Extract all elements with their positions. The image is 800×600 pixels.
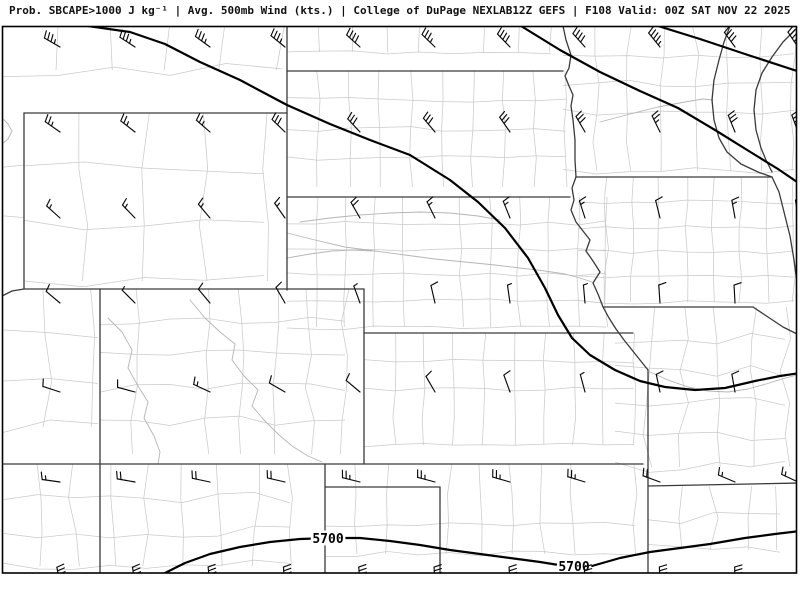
wind-barb — [276, 282, 285, 303]
wind-barb — [198, 198, 210, 218]
wind-barb — [493, 470, 510, 482]
wind-barb — [269, 376, 285, 392]
wind-barb — [735, 565, 742, 585]
wind-barb — [656, 197, 663, 218]
wind-barb — [117, 471, 135, 482]
wind-barb — [354, 284, 360, 303]
wind-barb — [342, 470, 360, 482]
wind-barb — [659, 283, 666, 303]
wind-barb — [573, 27, 585, 47]
wind-barb — [267, 470, 285, 482]
wind-barb — [659, 565, 666, 585]
wind-barb — [359, 565, 367, 585]
wind-barb — [426, 371, 435, 392]
wind-barb — [792, 111, 799, 132]
wind-barb — [656, 371, 663, 392]
wind-barb — [196, 113, 210, 132]
wind-barbs-layer — [41, 26, 800, 585]
wind-barb — [121, 114, 135, 132]
wind-barb — [583, 284, 587, 303]
wind-barb — [272, 113, 285, 132]
wind-barb — [346, 374, 360, 392]
wind-barb — [643, 468, 660, 482]
wind-barb — [500, 112, 510, 132]
wind-barb — [418, 470, 435, 482]
wind-barb — [652, 111, 660, 132]
weather-model-chart: Prob. SBCAPE>1000 J kg⁻¹ | Avg. 500mb Wi… — [0, 0, 800, 600]
height-contours-layer — [88, 26, 800, 574]
wind-barb — [198, 283, 210, 303]
height-contour-trough — [88, 26, 800, 390]
wind-barb — [122, 199, 135, 218]
contour-label-5700: 5700 — [312, 532, 343, 547]
wind-barb — [732, 371, 739, 392]
wind-barb — [41, 472, 60, 482]
wind-barb — [576, 111, 585, 132]
wind-barb — [788, 26, 799, 47]
wind-barb — [283, 565, 291, 585]
wind-barb — [718, 468, 735, 482]
wind-barb — [503, 197, 510, 218]
wind-barb — [351, 197, 360, 218]
river-lines-layer — [2, 99, 797, 464]
wind-barb — [422, 28, 435, 47]
wind-barb — [275, 198, 285, 218]
wind-barb — [649, 27, 661, 47]
wind-barb — [427, 197, 435, 218]
wind-barb — [192, 471, 210, 482]
wind-barb — [782, 467, 798, 482]
wind-barb — [431, 282, 438, 303]
wind-barb — [348, 112, 360, 132]
wind-barb — [728, 111, 737, 132]
wind-barb — [504, 371, 510, 392]
wind-barb — [57, 564, 65, 585]
wind-barb — [497, 28, 510, 47]
weather-map: 57005700 — [0, 0, 800, 600]
wind-barb — [45, 115, 60, 132]
wind-barb — [47, 199, 60, 218]
wind-barb — [732, 197, 739, 218]
wind-barb — [579, 197, 585, 218]
wind-barb — [509, 565, 517, 585]
wind-barb — [347, 28, 360, 47]
wind-barb — [118, 380, 135, 392]
wind-barb — [208, 564, 216, 585]
wind-barb — [580, 373, 585, 392]
wind-barb — [195, 29, 210, 47]
map-layers: 57005700 — [0, 26, 800, 585]
wind-barb — [46, 285, 60, 303]
